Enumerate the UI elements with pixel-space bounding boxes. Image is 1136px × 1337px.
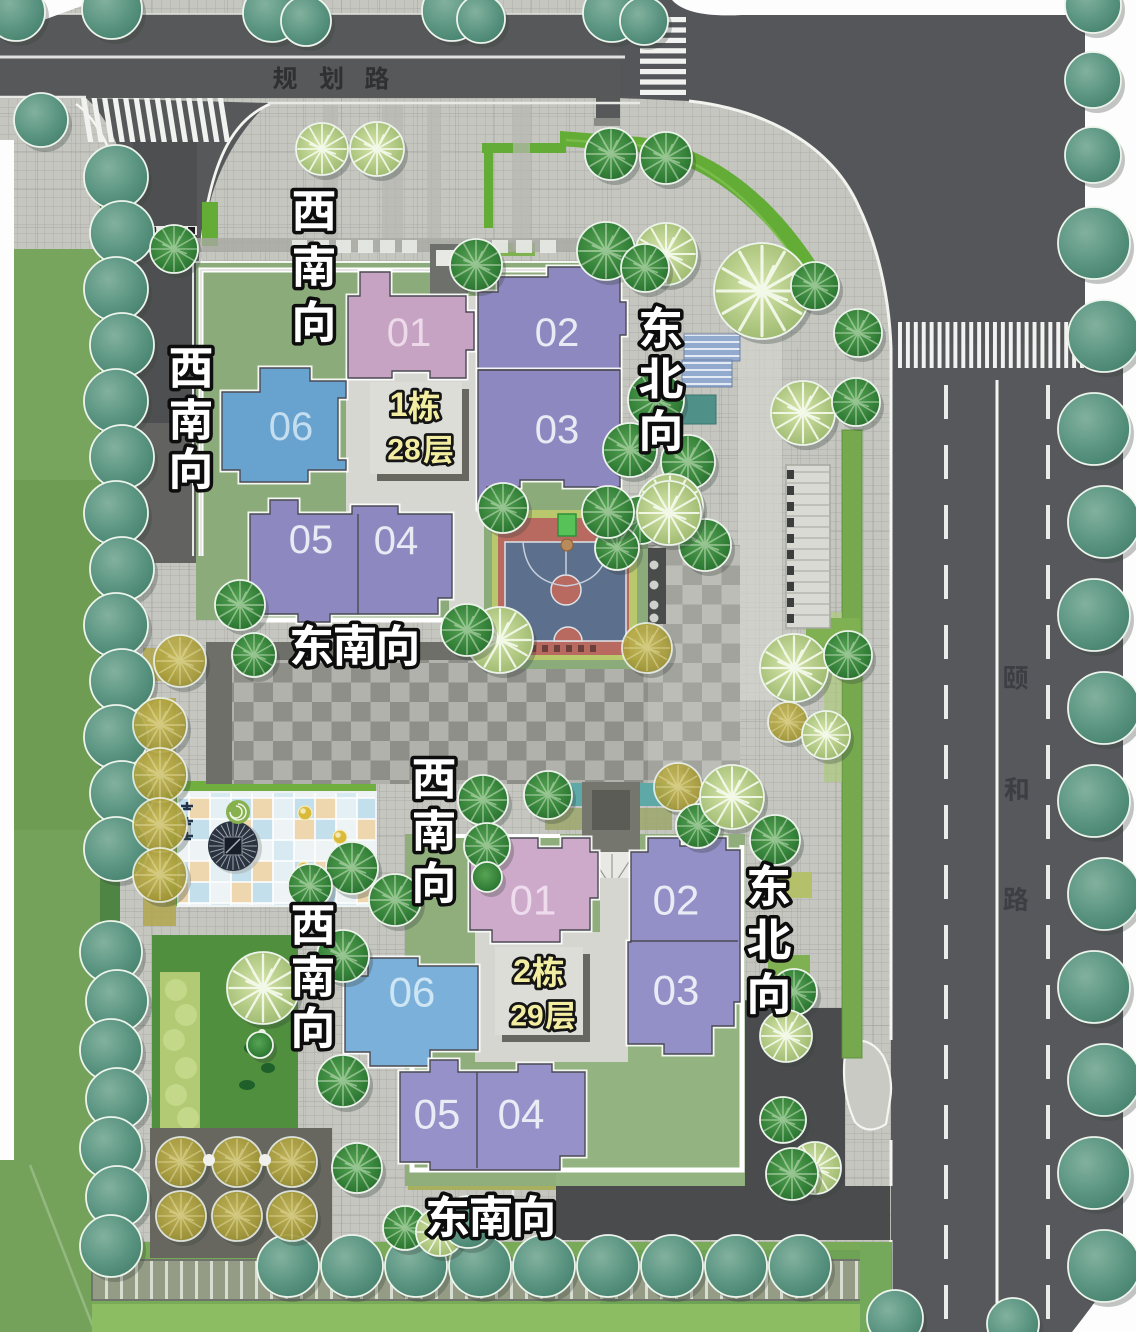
svg-text:03: 03 [535,408,580,452]
svg-text:02: 02 [653,877,700,924]
svg-text:04: 04 [374,519,419,563]
svg-text:05: 05 [414,1091,461,1138]
svg-text:06: 06 [389,969,436,1016]
svg-text:03: 03 [653,967,700,1014]
svg-text:2: 2 [513,953,531,989]
svg-text:29: 29 [510,1000,543,1033]
svg-text:02: 02 [535,311,580,355]
svg-text:06: 06 [269,405,314,449]
svg-text:01: 01 [510,877,557,924]
svg-text:28: 28 [387,434,420,467]
svg-text:01: 01 [387,311,432,355]
svg-text:05: 05 [289,518,334,562]
svg-text:1: 1 [390,386,409,424]
svg-text:04: 04 [498,1091,545,1138]
